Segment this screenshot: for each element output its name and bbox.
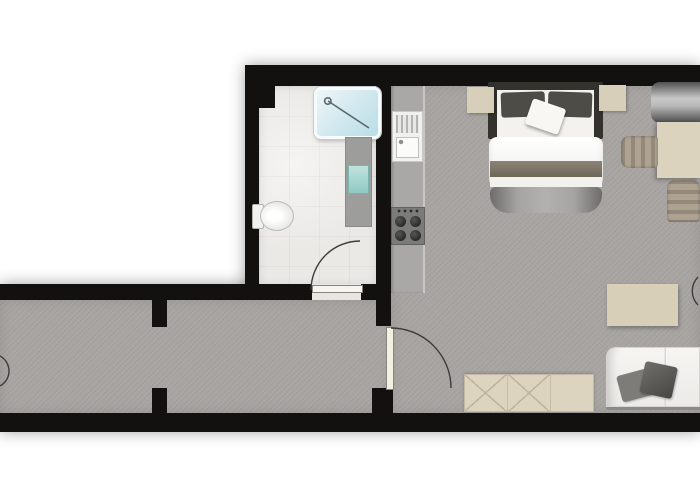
hallway-floor <box>0 300 391 413</box>
hallway-door-leaf <box>386 327 394 390</box>
door-south-stub <box>372 388 393 415</box>
bed-footer-blanket <box>490 187 602 213</box>
bathroom-corner-block <box>245 65 275 108</box>
shower-tray <box>314 87 381 139</box>
bathroom-door-notch <box>361 284 376 300</box>
bottom-wall <box>0 413 700 432</box>
apartment-floor-plan <box>0 0 700 500</box>
dining-table <box>657 122 700 178</box>
sideboard-door-cross <box>508 374 552 412</box>
kitchen-sink-basin <box>396 137 419 158</box>
nightstand-right <box>599 85 626 111</box>
top-wall <box>245 65 700 86</box>
bathroom-door-leaf <box>312 285 363 293</box>
hall-divider-south-stub <box>152 388 167 415</box>
coffee-table <box>607 284 678 326</box>
toilet-bowl <box>260 201 294 231</box>
bed-sheet-fold <box>490 177 602 187</box>
hall-divider-north-stub <box>152 284 167 327</box>
stove-burner <box>395 230 406 241</box>
stove-burner <box>395 216 406 227</box>
nightstand-left <box>467 87 494 113</box>
stove-burner <box>410 216 421 227</box>
chair-south <box>667 180 700 222</box>
sofa-pillow-right <box>639 361 678 399</box>
stove <box>391 207 425 245</box>
sideboard <box>464 374 594 412</box>
sideboard-door-plain <box>551 374 594 412</box>
chair-west <box>621 136 658 168</box>
bed-blanket-taupe <box>490 161 602 177</box>
washbasin <box>348 165 369 194</box>
stove-burner <box>410 230 421 241</box>
kitchen-drainer <box>396 115 419 133</box>
bolster-roll <box>651 82 700 123</box>
sideboard-door-cross <box>464 374 508 412</box>
